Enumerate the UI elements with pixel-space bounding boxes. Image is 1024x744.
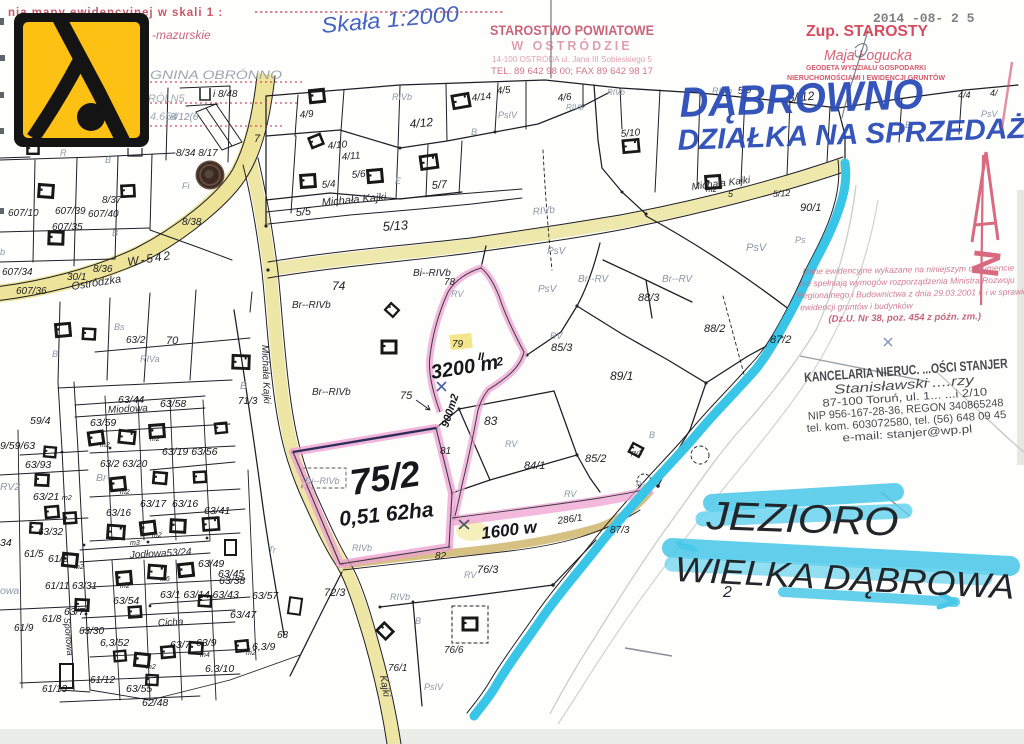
svg-text:4/5: 4/5 (496, 85, 511, 97)
svg-text:34: 34 (0, 537, 12, 549)
svg-text:63/54: 63/54 (113, 595, 139, 607)
svg-text:63/1 63/14 63/43: 63/1 63/14 63/43 (160, 589, 239, 601)
svg-text:B: B (240, 380, 247, 392)
svg-text:m2: m2 (150, 436, 160, 443)
svg-text:61/9: 61/9 (14, 623, 34, 634)
svg-text:85/3: 85/3 (551, 342, 573, 354)
svg-text:63/2: 63/2 (126, 335, 146, 346)
svg-text:PsV: PsV (538, 284, 558, 295)
svg-text:63/16: 63/16 (172, 498, 198, 510)
svg-text:63/32: 63/32 (38, 527, 63, 538)
svg-text:68: 68 (277, 630, 289, 641)
svg-text:II: II (478, 351, 485, 363)
svg-text:m2: m2 (120, 489, 130, 496)
svg-text:m2: m2 (152, 532, 162, 539)
svg-text:88/3: 88/3 (638, 292, 660, 304)
svg-text:14-100 OSTRÓDA ul. Jana III So: 14-100 OSTRÓDA ul. Jana III Sobieskiego … (492, 55, 653, 64)
svg-text:63/30: 63/30 (79, 626, 104, 637)
svg-text:2: 2 (722, 584, 732, 601)
svg-text:74: 74 (332, 279, 346, 293)
svg-text:63/17: 63/17 (140, 498, 167, 510)
svg-text:B: B (112, 228, 118, 238)
svg-text:62/48: 62/48 (142, 697, 168, 709)
svg-text:63/58: 63/58 (160, 398, 186, 410)
svg-text:4/11: 4/11 (341, 150, 361, 163)
svg-text:RIVb: RIVb (532, 205, 556, 218)
svg-text:6.3/10: 6.3/10 (205, 663, 234, 675)
svg-text:RÓLN5: RÓLN5 (148, 92, 186, 105)
svg-text:61/13: 61/13 (42, 684, 67, 695)
svg-text:m2: m2 (62, 495, 72, 502)
svg-text:84/1: 84/1 (524, 460, 545, 472)
svg-text:TEL. 89 642 98 00; FAX 89 642: TEL. 89 642 98 00; FAX 89 642 98 17 (491, 66, 653, 76)
svg-text:63/38: 63/38 (219, 575, 245, 587)
svg-text:61/11 63/31: 61/11 63/31 (45, 581, 97, 592)
svg-text:5/4: 5/4 (321, 179, 336, 191)
svg-text:GNINA OBRÓNNO: GNINA OBRÓNNO (150, 67, 282, 82)
svg-text:607/10: 607/10 (8, 208, 39, 219)
svg-text:Br--RIVb: Br--RIVb (312, 387, 351, 398)
svg-text:owa: owa (0, 585, 19, 597)
svg-text:63/41: 63/41 (204, 505, 230, 517)
svg-text:75: 75 (400, 390, 413, 402)
svg-text:8/37: 8/37 (102, 195, 122, 206)
svg-text:5/13: 5/13 (382, 217, 409, 234)
svg-text:B: B (649, 430, 655, 440)
svg-text:PsIV: PsIV (424, 682, 444, 692)
svg-text:63/55: 63/55 (126, 683, 152, 695)
svg-text:90/1: 90/1 (800, 202, 821, 214)
svg-text:Fi: Fi (182, 181, 190, 191)
svg-text:76/6: 76/6 (444, 645, 464, 656)
svg-text:Ps: Ps (795, 235, 806, 245)
svg-text:PsIV: PsIV (498, 110, 518, 120)
svg-text:Br--RV: Br--RV (578, 274, 610, 285)
svg-text:607/36: 607/36 (16, 286, 47, 297)
svg-text:8/36: 8/36 (93, 264, 113, 275)
svg-text:87/2: 87/2 (770, 334, 791, 346)
svg-text:63/2 63/20: 63/2 63/20 (100, 459, 148, 470)
svg-text:Bs: Bs (114, 322, 125, 332)
svg-text:63/7: 63/7 (64, 606, 86, 618)
svg-text:61/8: 61/8 (42, 614, 62, 625)
svg-text:81: 81 (440, 446, 451, 457)
svg-text:ewidencji gruntów i budynków: ewidencji gruntów i budynków (800, 300, 913, 312)
svg-text:607/39: 607/39 (55, 206, 86, 217)
svg-text:607/40: 607/40 (88, 209, 119, 220)
svg-text:Br--RV: Br--RV (662, 274, 694, 285)
svg-text:m3: m3 (130, 540, 140, 547)
svg-text:Ps: Ps (636, 480, 645, 489)
svg-text:61/6: 61/6 (48, 553, 69, 565)
svg-text:RV: RV (564, 489, 577, 499)
svg-text:4/14: 4/14 (471, 91, 492, 104)
svg-text:JEZIORO: JEZIORO (705, 494, 900, 545)
svg-text:m2: m2 (74, 564, 84, 571)
svg-text:8/38: 8/38 (182, 217, 202, 228)
svg-text:63/19 63/56: 63/19 63/56 (162, 446, 218, 458)
svg-text:63/16: 63/16 (106, 508, 131, 519)
svg-text:8/34 8/17: 8/34 8/17 (176, 148, 218, 159)
svg-text:9/59/63: 9/59/63 (0, 440, 35, 452)
svg-text:RV: RV (550, 331, 563, 341)
svg-text:88/2: 88/2 (704, 323, 725, 335)
svg-text:63/47: 63/47 (230, 609, 257, 621)
svg-text:607/34: 607/34 (2, 267, 33, 278)
svg-text:4/10: 4/10 (327, 139, 348, 152)
svg-text:4/9: 4/9 (299, 109, 314, 121)
svg-text:Br-: Br- (96, 472, 110, 484)
svg-text:5/5: 5/5 (295, 206, 312, 219)
svg-text:89/1: 89/1 (610, 369, 633, 383)
svg-text:607/35: 607/35 (52, 222, 83, 233)
svg-text:79: 79 (452, 339, 464, 350)
svg-text:Tr: Tr (268, 545, 277, 555)
svg-text:RIVb: RIVb (352, 543, 372, 553)
svg-text:76/3: 76/3 (477, 564, 499, 576)
svg-text:RV2: RV2 (0, 481, 20, 493)
svg-text:63/21: 63/21 (33, 491, 59, 503)
svg-text:Br--RIVb: Br--RIVb (292, 300, 331, 311)
svg-text:61/12: 61/12 (90, 675, 115, 686)
svg-text:63/93: 63/93 (25, 459, 51, 471)
svg-text:R: R (60, 148, 67, 158)
svg-text:63/44: 63/44 (118, 394, 144, 406)
svg-text:Michała Kajki: Michała Kajki (259, 345, 272, 405)
svg-text:85/2: 85/2 (585, 453, 606, 465)
svg-text:7: 7 (254, 133, 261, 145)
svg-text:B: B (415, 616, 421, 626)
svg-text:Maja Łogucka: Maja Łogucka (824, 47, 912, 64)
svg-text:RIVb: RIVb (392, 92, 412, 102)
svg-text:6,3/52: 6,3/52 (100, 637, 129, 649)
svg-text:61/5: 61/5 (24, 549, 44, 560)
svg-text:87/3: 87/3 (610, 525, 630, 536)
svg-text:m4: m4 (200, 652, 210, 659)
svg-text:RIVb: RIVb (607, 88, 625, 97)
svg-text:Cicha: Cicha (158, 617, 185, 629)
svg-text:pv2: pv2 (630, 450, 642, 457)
svg-text:E: E (395, 176, 402, 186)
svg-text:PsV: PsV (547, 246, 567, 257)
svg-text:83: 83 (484, 414, 498, 428)
svg-text:RV: RV (451, 289, 464, 299)
svg-text:-mazurskie: -mazurskie (152, 28, 211, 42)
svg-text:5/7: 5/7 (431, 179, 448, 192)
svg-text:5/6: 5/6 (351, 169, 366, 181)
svg-text:76/1: 76/1 (388, 663, 407, 674)
svg-text:63/57: 63/57 (252, 590, 279, 602)
svg-text:72/3: 72/3 (324, 587, 346, 599)
svg-text:5/10: 5/10 (620, 127, 641, 140)
svg-text:63/59: 63/59 (90, 417, 116, 429)
svg-text:PsV: PsV (746, 242, 768, 254)
svg-text:59/4: 59/4 (30, 415, 51, 427)
svg-text:i 8/48: i 8/48 (213, 89, 238, 100)
svg-text:B: B (105, 155, 111, 165)
svg-text:5/12: 5/12 (772, 188, 790, 199)
svg-text:RIVb: RIVb (566, 103, 584, 112)
svg-text:m6: m6 (160, 576, 170, 583)
svg-text:Di--RIVb: Di--RIVb (305, 476, 340, 486)
svg-text:63/7: 63/7 (170, 639, 192, 651)
svg-text:m2: m2 (246, 650, 256, 657)
svg-text:RIVb: RIVb (390, 592, 410, 602)
svg-text:70: 70 (166, 335, 179, 347)
svg-text:B: B (52, 349, 58, 359)
svg-text:W OSTRÓDZIE: W OSTRÓDZIE (511, 38, 632, 53)
svg-text:RV: RV (464, 570, 477, 580)
svg-text:RV: RV (505, 439, 518, 449)
svg-text:4.654: 4.654 (150, 111, 178, 123)
svg-text:STAROSTWO POWIATOWE: STAROSTWO POWIATOWE (490, 22, 654, 38)
svg-text:b: b (0, 247, 5, 257)
svg-text:m2: m2 (120, 583, 130, 590)
svg-text:4/4: 4/4 (958, 90, 971, 100)
svg-text:78: 78 (444, 277, 456, 288)
svg-text:m2: m2 (146, 664, 156, 671)
svg-text:m2: m2 (100, 442, 110, 449)
svg-text:4/12: 4/12 (409, 115, 434, 131)
svg-text:B: B (471, 127, 477, 137)
svg-text:82: 82 (435, 551, 447, 562)
svg-text:RIVa: RIVa (140, 354, 160, 364)
svg-text:71/3: 71/3 (238, 396, 258, 407)
svg-text:63/9: 63/9 (196, 637, 217, 649)
